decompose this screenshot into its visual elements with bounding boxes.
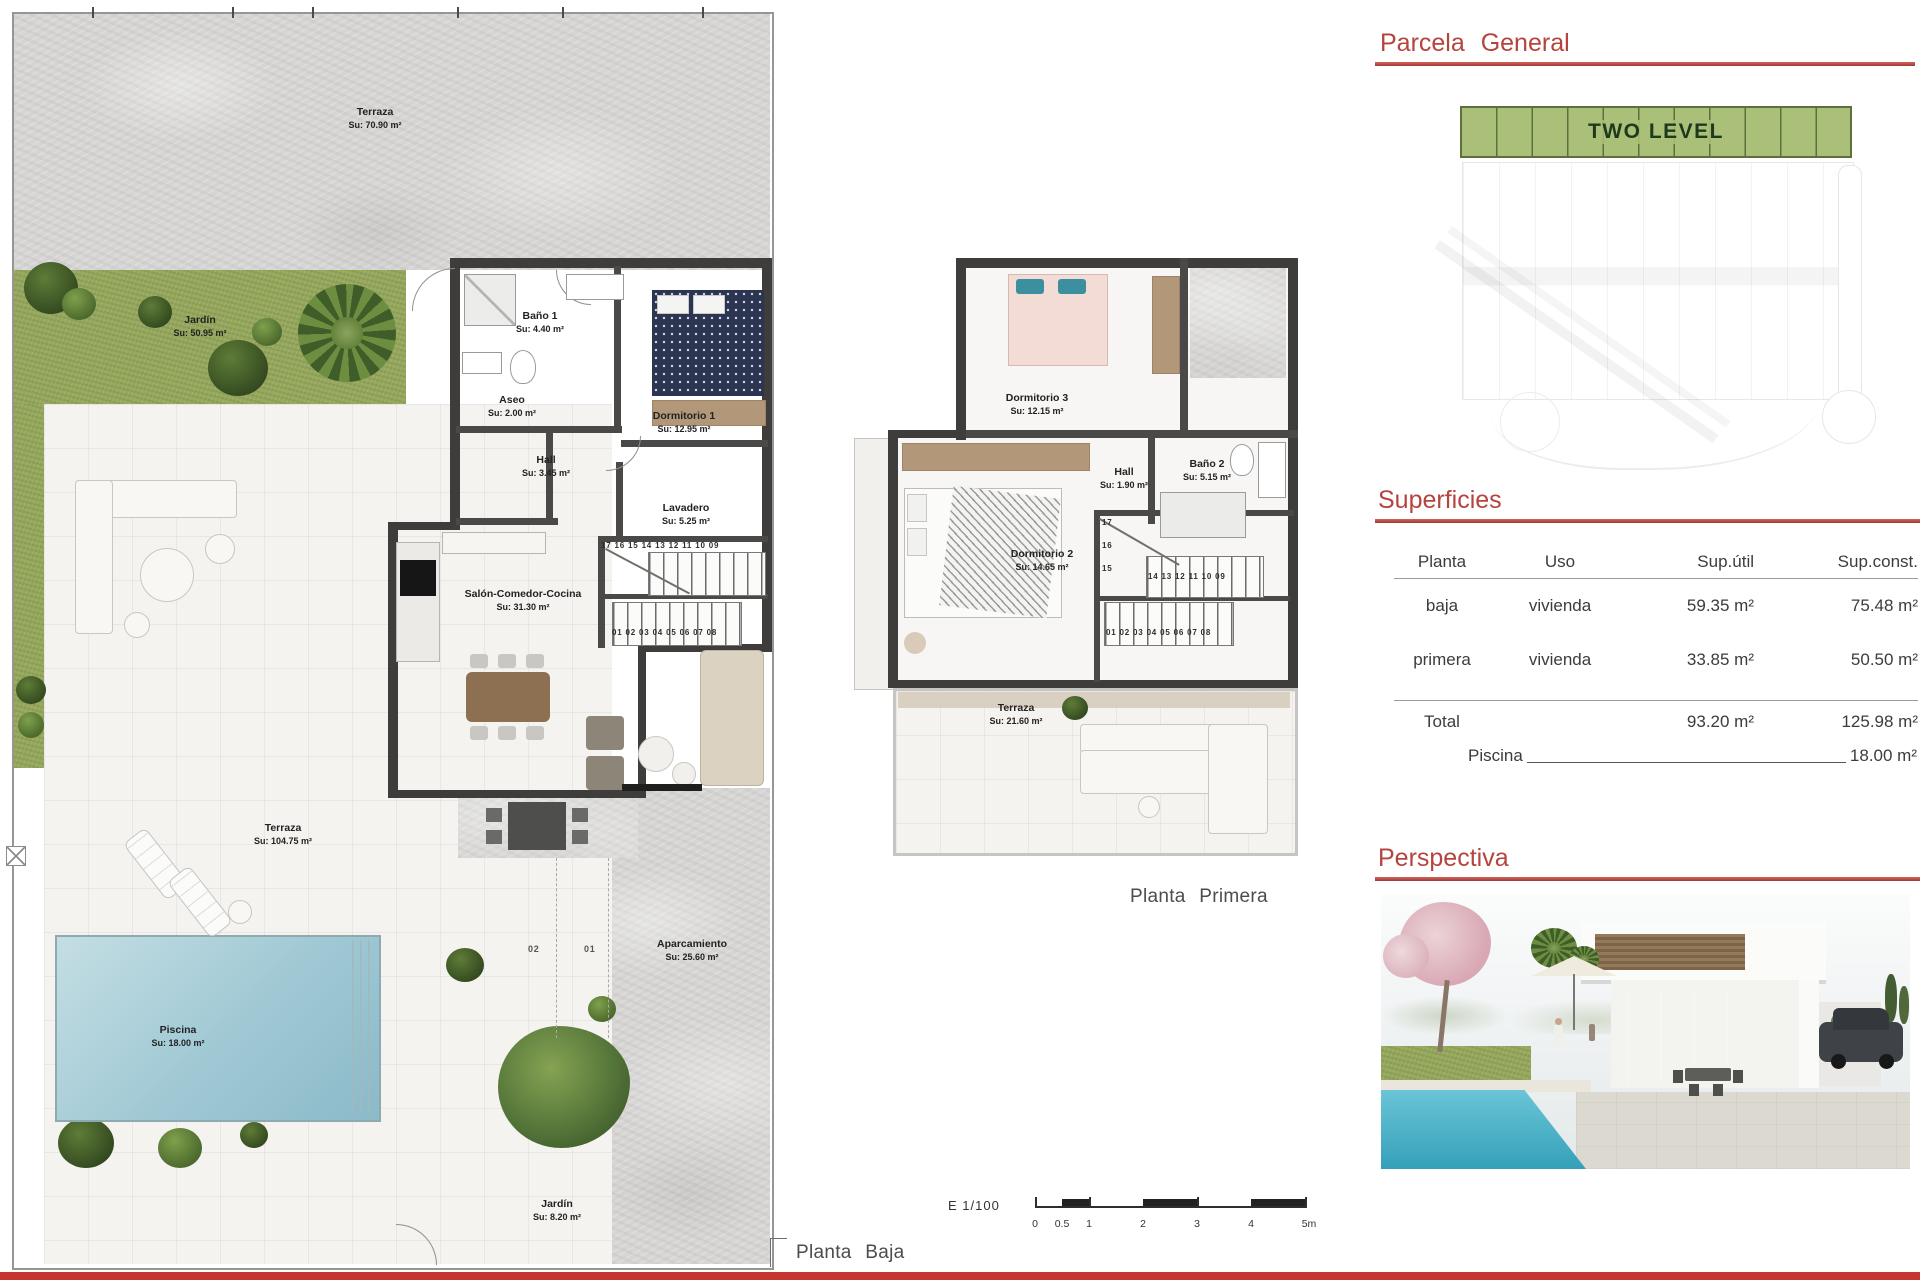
gf-terraza-top-area: [14, 14, 770, 270]
scale-bar-line: [1035, 1206, 1307, 1208]
room-area: Su: 21.60 m²: [989, 716, 1042, 726]
room-name: Terraza: [998, 702, 1035, 714]
wall-segment: [888, 680, 1298, 688]
scale-bar-block: [1251, 1199, 1305, 1206]
stair-numbers: 14 13 12 11 10 09: [1148, 572, 1226, 581]
room-label-dormitorio3: Dormitorio 3 Su: 12.15 m²: [1006, 392, 1068, 417]
room-area: Su: 5.15 m²: [1183, 472, 1231, 482]
room-area: Su: 18.00 m²: [151, 1038, 204, 1048]
umbrella-pole: [1573, 974, 1575, 1030]
section-title-superficies: Superficies: [1378, 486, 1502, 515]
wall-segment: [956, 258, 966, 440]
room-name: Salón-Comedor-Cocina: [465, 588, 582, 600]
site-curved-road: [1490, 398, 1820, 470]
armchair: [586, 716, 624, 750]
bush: [138, 296, 172, 328]
table-line: [1394, 578, 1918, 579]
piscina-value: 18.00 m²: [1850, 746, 1917, 766]
parking-number: 02: [528, 944, 540, 954]
bush: [588, 996, 616, 1022]
room-name: Jardín: [541, 1198, 573, 1210]
site-culdesac: [1822, 390, 1876, 444]
cell-uso: vivienda: [1490, 596, 1630, 616]
bush: [62, 288, 96, 320]
two-level-label: TWO LEVEL: [1582, 120, 1730, 144]
stair-numbers: 17 16 15 14 13 12 11 10 09: [601, 541, 719, 550]
room-name: Hall: [536, 454, 555, 466]
wall-segment: [450, 258, 772, 268]
render-table: [1685, 1068, 1731, 1081]
wall-segment: [888, 430, 898, 688]
chair: [486, 830, 502, 844]
potted-plant: [1062, 696, 1088, 720]
outdoor-pouf: [124, 612, 150, 638]
table-row: primera vivienda 33.85 m² 50.50 m²: [1394, 650, 1918, 670]
kitchen-island: [442, 532, 546, 554]
bush: [208, 340, 268, 396]
col-header: Uso: [1490, 552, 1630, 572]
scale-tick-label: 3: [1194, 1218, 1200, 1230]
room-label-terraza-main: Terraza Su: 104.75 m²: [254, 822, 312, 847]
room-area: Su: 12.95 m²: [657, 424, 710, 434]
plan-sheet: 17 16 15 14 13 12 11 10 09 01 02 03 04 0…: [0, 0, 1920, 1280]
chair: [572, 830, 588, 844]
person-head: [1555, 1018, 1562, 1025]
sink: [1258, 442, 1286, 498]
stair-treads: [1104, 602, 1234, 646]
pillow: [1058, 279, 1086, 294]
room-area: Su: 104.75 m²: [254, 836, 312, 846]
toilet: [1230, 444, 1254, 476]
scale-tick-label: 0.5: [1055, 1218, 1070, 1230]
room-label-bano1: Baño 1 Su: 4.40 m²: [516, 310, 564, 335]
blossom-tree-canopy: [1383, 934, 1429, 978]
pool: [55, 935, 381, 1122]
coffee-table: [638, 736, 674, 772]
chair: [572, 808, 588, 822]
toilet: [510, 350, 536, 384]
room-label-hall: Hall Su: 3.45 m²: [522, 454, 570, 479]
pillow: [693, 295, 725, 314]
room-label-dormitorio2: Dormitorio 2 Su: 14.65 m²: [1011, 548, 1073, 573]
col-header: Planta: [1394, 552, 1490, 572]
bush: [252, 318, 282, 346]
stair-treads: [612, 602, 742, 646]
room-name: Dormitorio 2: [1011, 548, 1073, 560]
section-underline: [1375, 62, 1915, 66]
bottom-red-bar: [0, 1272, 1920, 1280]
stair-numbers: 01 02 03 04 05 06 07 08: [1106, 628, 1211, 637]
outdoor-side-table: [228, 900, 252, 924]
room-area: Su: 31.30 m²: [496, 602, 549, 612]
corner-mark: [770, 1238, 787, 1267]
room-name: Terraza: [265, 822, 302, 834]
room-area: Su: 25.60 m²: [665, 952, 718, 962]
dining-table: [466, 672, 550, 722]
scale-tick-label: 2: [1140, 1218, 1146, 1230]
render-chair: [1689, 1084, 1699, 1096]
total-const: 125.98 m²: [1770, 712, 1918, 732]
room-label-dormitorio1: Dormitorio 1 Su: 12.95 m²: [653, 410, 715, 435]
site-road-stub: [1838, 165, 1862, 405]
outdoor-sofa: [75, 480, 113, 634]
survey-tick: [702, 7, 704, 18]
cypress-tree: [1899, 986, 1909, 1024]
room-name: Lavadero: [663, 502, 710, 514]
parking-line: [556, 858, 557, 1038]
col-header: Sup.const.: [1770, 552, 1918, 572]
villa-column: [1799, 980, 1819, 1088]
empty-cell: [1490, 712, 1630, 732]
room-area: Su: 14.65 m²: [1015, 562, 1068, 572]
outdoor-pouf: [205, 534, 235, 564]
wall-segment: [456, 426, 622, 433]
room-label-hall1: Hall Su: 1.90 m²: [1100, 466, 1148, 491]
stair-treads: [648, 552, 766, 596]
person-body: [1554, 1025, 1563, 1046]
room-name: Aparcamiento: [657, 938, 727, 950]
pillow: [907, 494, 927, 522]
render-pool: [1381, 1090, 1586, 1169]
scale-bar-block: [1143, 1199, 1197, 1206]
car-wheel: [1879, 1054, 1894, 1069]
parking-line: [608, 858, 609, 1038]
cell-const: 75.48 m²: [1770, 596, 1918, 616]
room-label-terraza-top: Terraza Su: 70.90 m²: [348, 106, 401, 131]
room-label-terraza1: Terraza Su: 21.60 m²: [989, 702, 1042, 727]
cell-planta: baja: [1394, 596, 1490, 616]
survey-tick: [457, 7, 459, 18]
room-label-aparcamiento: Aparcamiento Su: 25.60 m²: [657, 938, 727, 963]
side-table: [672, 762, 696, 786]
ground-floor-caption: Planta Baja: [796, 1242, 904, 1264]
piscina-label: Piscina: [1468, 746, 1523, 766]
wall-segment: [621, 440, 768, 447]
room-label-bano2: Baño 2 Su: 5.15 m²: [1183, 458, 1231, 483]
cooktop: [400, 560, 436, 596]
wardrobe: [1152, 276, 1180, 374]
room-name: Hall: [1114, 466, 1133, 478]
section-title-perspectiva: Perspectiva: [1378, 844, 1509, 873]
section-underline: [1375, 877, 1920, 881]
terrace-chaise: [1208, 724, 1268, 834]
chair: [498, 726, 516, 740]
survey-tick: [562, 7, 564, 18]
wall-segment: [456, 518, 558, 525]
paving: [1576, 1092, 1910, 1169]
pillow: [657, 295, 689, 314]
room-area: Su: 12.15 m²: [1010, 406, 1063, 416]
wall-segment: [1180, 258, 1188, 438]
side-table: [904, 632, 926, 654]
room-area: Su: 5.25 m²: [662, 516, 710, 526]
chair: [526, 654, 544, 668]
chair: [498, 654, 516, 668]
room-name: Jardín: [184, 314, 216, 326]
render-chair: [1733, 1070, 1743, 1083]
room-area: Su: 4.40 m²: [516, 324, 564, 334]
bush: [58, 1118, 114, 1168]
room-name: Terraza: [357, 106, 394, 118]
perspective-render: [1381, 894, 1910, 1169]
wall-segment: [638, 644, 646, 798]
shower: [464, 274, 516, 326]
survey-tick: [312, 7, 314, 18]
armchair: [586, 756, 624, 790]
site-two-level-band: TWO LEVEL: [1460, 106, 1852, 158]
car-roof: [1833, 1008, 1889, 1030]
room-label-salon: Salón-Comedor-Cocina Su: 31.30 m²: [465, 588, 582, 613]
cell-const: 50.50 m²: [1770, 650, 1918, 670]
pillow: [1016, 279, 1044, 294]
scale-tick-label: 0: [1032, 1218, 1038, 1230]
lawn: [1381, 1046, 1531, 1082]
bush: [18, 712, 44, 738]
palm-tree: [298, 284, 396, 382]
chair: [526, 726, 544, 740]
room-name: Piscina: [160, 1024, 197, 1036]
wall-segment: [1288, 258, 1298, 688]
cell-util: 59.35 m²: [1630, 596, 1770, 616]
chair: [470, 654, 488, 668]
render-chair: [1713, 1084, 1723, 1096]
room-label-jardin: Jardín Su: 50.95 m²: [173, 314, 226, 339]
table-total-row: Total 93.20 m² 125.98 m²: [1394, 712, 1918, 732]
cell-uso: vivienda: [1490, 650, 1630, 670]
bush: [240, 1122, 268, 1148]
chair: [486, 808, 502, 822]
villa-wood-slats: [1595, 934, 1745, 970]
bush: [446, 948, 484, 982]
sofa: [700, 650, 764, 786]
scale-tick-label: 1: [1086, 1218, 1092, 1230]
wall-segment: [388, 790, 646, 798]
total-util: 93.20 m²: [1630, 712, 1770, 732]
stair-number: 17: [1102, 518, 1113, 527]
wall-segment: [598, 536, 605, 648]
room-name: Dormitorio 3: [1006, 392, 1068, 404]
first-floor-caption: Planta Primera: [1130, 886, 1268, 908]
porch-table: [508, 802, 566, 850]
wall-segment: [616, 462, 623, 540]
room-area: Su: 1.90 m²: [1100, 480, 1148, 490]
survey-tick: [92, 7, 94, 18]
wall-segment: [388, 522, 458, 530]
parking-number: 01: [584, 944, 596, 954]
room-label-piscina: Piscina Su: 18.00 m²: [151, 1024, 204, 1049]
pillow: [907, 528, 927, 556]
wall-segment: [956, 258, 1298, 268]
bush: [16, 676, 46, 704]
room-name: Dormitorio 1: [653, 410, 715, 422]
room-area: Su: 50.95 m²: [173, 328, 226, 338]
render-chair: [1673, 1070, 1683, 1083]
ff-deck-strip: [898, 692, 1290, 708]
total-label: Total: [1394, 712, 1490, 732]
bush: [158, 1128, 202, 1168]
car-wheel: [1831, 1054, 1846, 1069]
stair-number: 15: [1102, 564, 1113, 573]
cell-util: 33.85 m²: [1630, 650, 1770, 670]
boundary-marker: [6, 846, 26, 866]
table-header-row: Planta Uso Sup.útil Sup.const.: [1394, 552, 1918, 572]
leader-line: [1527, 762, 1846, 763]
wall-segment: [966, 430, 1298, 438]
scale-tick-label: 5m: [1302, 1218, 1317, 1230]
terrace-table: [1138, 796, 1160, 818]
scale-tick: [1305, 1197, 1307, 1208]
scale-bar-block: [1062, 1199, 1089, 1206]
pool-steps: [352, 940, 374, 1113]
room-name: Baño 2: [1189, 458, 1224, 470]
room-name: Baño 1: [522, 310, 557, 322]
room-label-lavadero: Lavadero Su: 5.25 m²: [662, 502, 710, 527]
scale-label: E 1/100: [948, 1198, 1000, 1213]
section-underline: [1375, 519, 1920, 523]
col-header: Sup.útil: [1630, 552, 1770, 572]
survey-tick: [232, 7, 234, 18]
cell-planta: primera: [1394, 650, 1490, 670]
stair-number: 16: [1102, 541, 1113, 550]
wardrobe: [902, 443, 1090, 471]
scale-tick: [1089, 1197, 1091, 1208]
sink: [462, 352, 502, 374]
room-label-jardin-small: Jardín Su: 8.20 m²: [533, 1198, 581, 1223]
table-row: baja vivienda 59.35 m² 75.48 m²: [1394, 596, 1918, 616]
piscina-row: Piscina 18.00 m²: [1468, 746, 1917, 766]
shower: [1160, 492, 1246, 538]
outdoor-table: [140, 548, 194, 602]
stair-numbers: 01 02 03 04 05 06 07 08: [612, 628, 717, 637]
room-label-aseo: Aseo Su: 2.00 m²: [488, 394, 536, 419]
scale-tick-label: 4: [1248, 1218, 1254, 1230]
person-figure: [1589, 1024, 1595, 1041]
wall-segment: [888, 430, 966, 438]
scale-tick: [1035, 1197, 1037, 1208]
chair: [470, 726, 488, 740]
room-area: Su: 3.45 m²: [522, 468, 570, 478]
table-line: [1394, 700, 1918, 701]
tv-bench: [622, 784, 702, 791]
room-area: Su: 70.90 m²: [348, 120, 401, 130]
section-title-parcela: Parcela General: [1380, 29, 1570, 58]
gf-aparcamiento-area: [612, 788, 770, 1264]
room-area: Su: 2.00 m²: [488, 408, 536, 418]
room-name: Aseo: [499, 394, 525, 406]
ff-concrete-patch: [1190, 258, 1286, 378]
wall-segment: [546, 433, 553, 525]
sink: [566, 274, 624, 300]
room-area: Su: 8.20 m²: [533, 1212, 581, 1222]
scale-tick: [1197, 1197, 1199, 1208]
